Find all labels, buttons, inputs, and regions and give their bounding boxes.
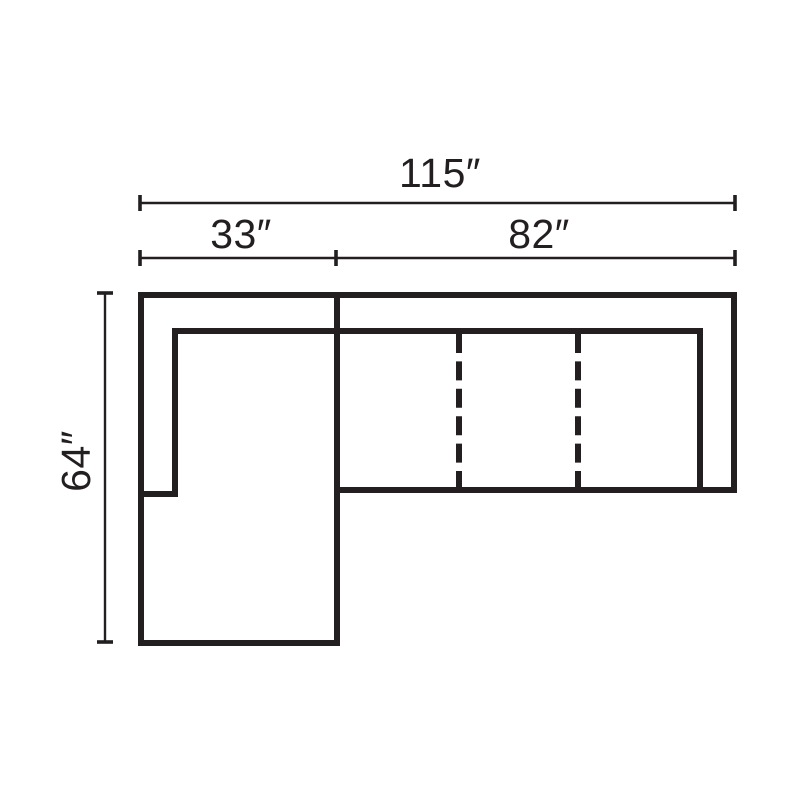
right-section-width-label: 82″: [508, 211, 570, 257]
dimension-lines-group: [97, 195, 735, 642]
depth-label: 64″: [53, 430, 99, 492]
dimension-labels-group: 115″ 33″ 82″ 64″: [53, 150, 570, 492]
sofa-outline-group: [138, 292, 734, 643]
sofa-outer-outline: [141, 295, 734, 643]
sofa-diagram-svg: 115″ 33″ 82″ 64″: [0, 0, 800, 800]
sofa-inner-outline: [138, 331, 700, 494]
total-width-label: 115″: [399, 150, 481, 196]
left-section-width-label: 33″: [210, 211, 272, 257]
sectional-sofa-dimension-diagram: 115″ 33″ 82″ 64″: [0, 0, 800, 800]
